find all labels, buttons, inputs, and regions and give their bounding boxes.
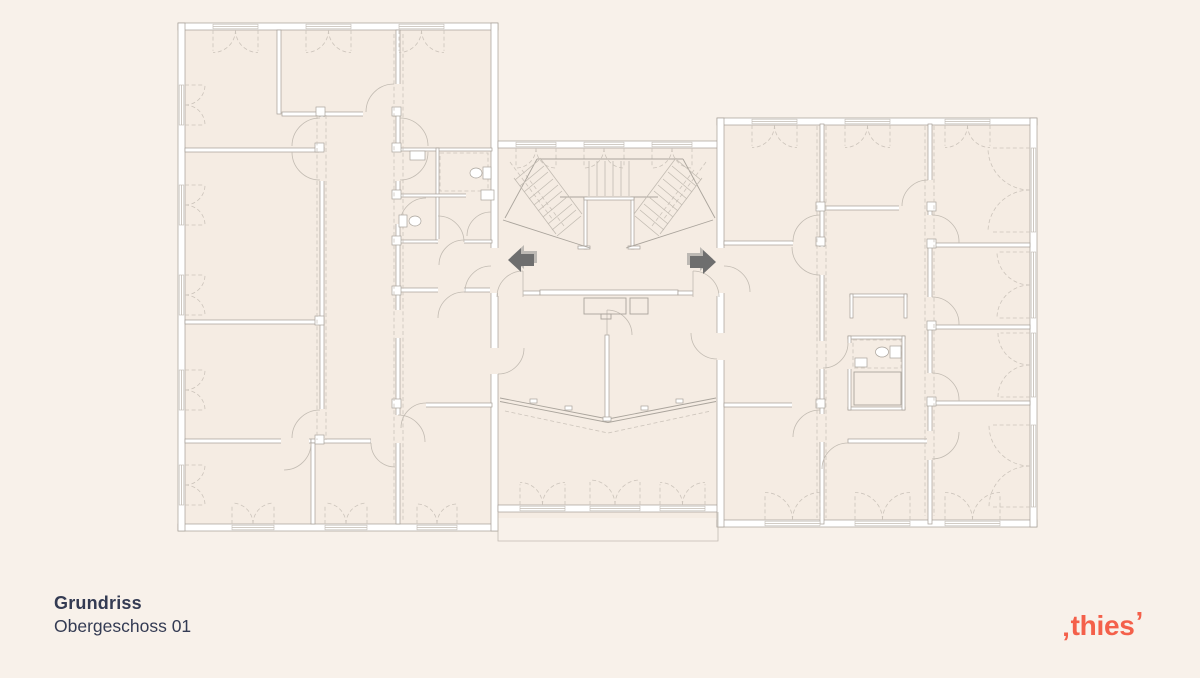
logo-wordmark: thies <box>1071 610 1135 641</box>
page-title: Grundriss <box>54 592 191 615</box>
logo-open-quote-mark: ‚ <box>1062 611 1069 643</box>
presentation-slide: Grundriss Obergeschoss 01 ‚thies’ <box>0 0 1200 678</box>
floor-level-subtitle: Obergeschoss 01 <box>54 615 191 638</box>
floor-plan <box>0 0 1200 678</box>
thies-logo: ‚thies’ <box>1062 610 1143 642</box>
room-areas <box>178 23 1037 531</box>
logo-close-quote-mark: ’ <box>1136 606 1143 638</box>
title-block: Grundriss Obergeschoss 01 <box>54 592 191 638</box>
